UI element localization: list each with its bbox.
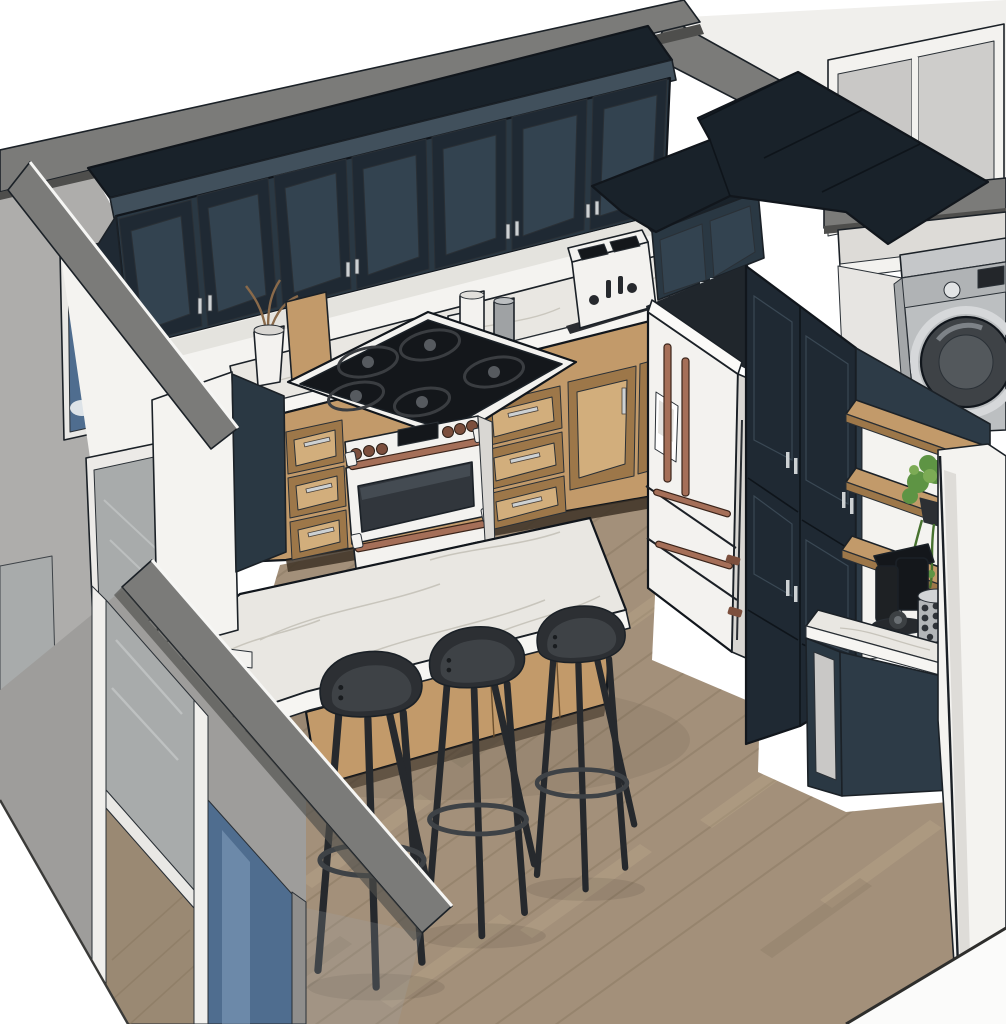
door-mullion (194, 700, 208, 1024)
drawer-stack-left (286, 420, 348, 560)
washer-knob (944, 282, 960, 298)
kitchen-scene (0, 0, 1006, 1024)
washer-display (978, 266, 1004, 288)
waterfall-end-panel (232, 374, 286, 572)
door-mullion (92, 586, 106, 1024)
kitchen-rendering (0, 0, 1006, 1024)
